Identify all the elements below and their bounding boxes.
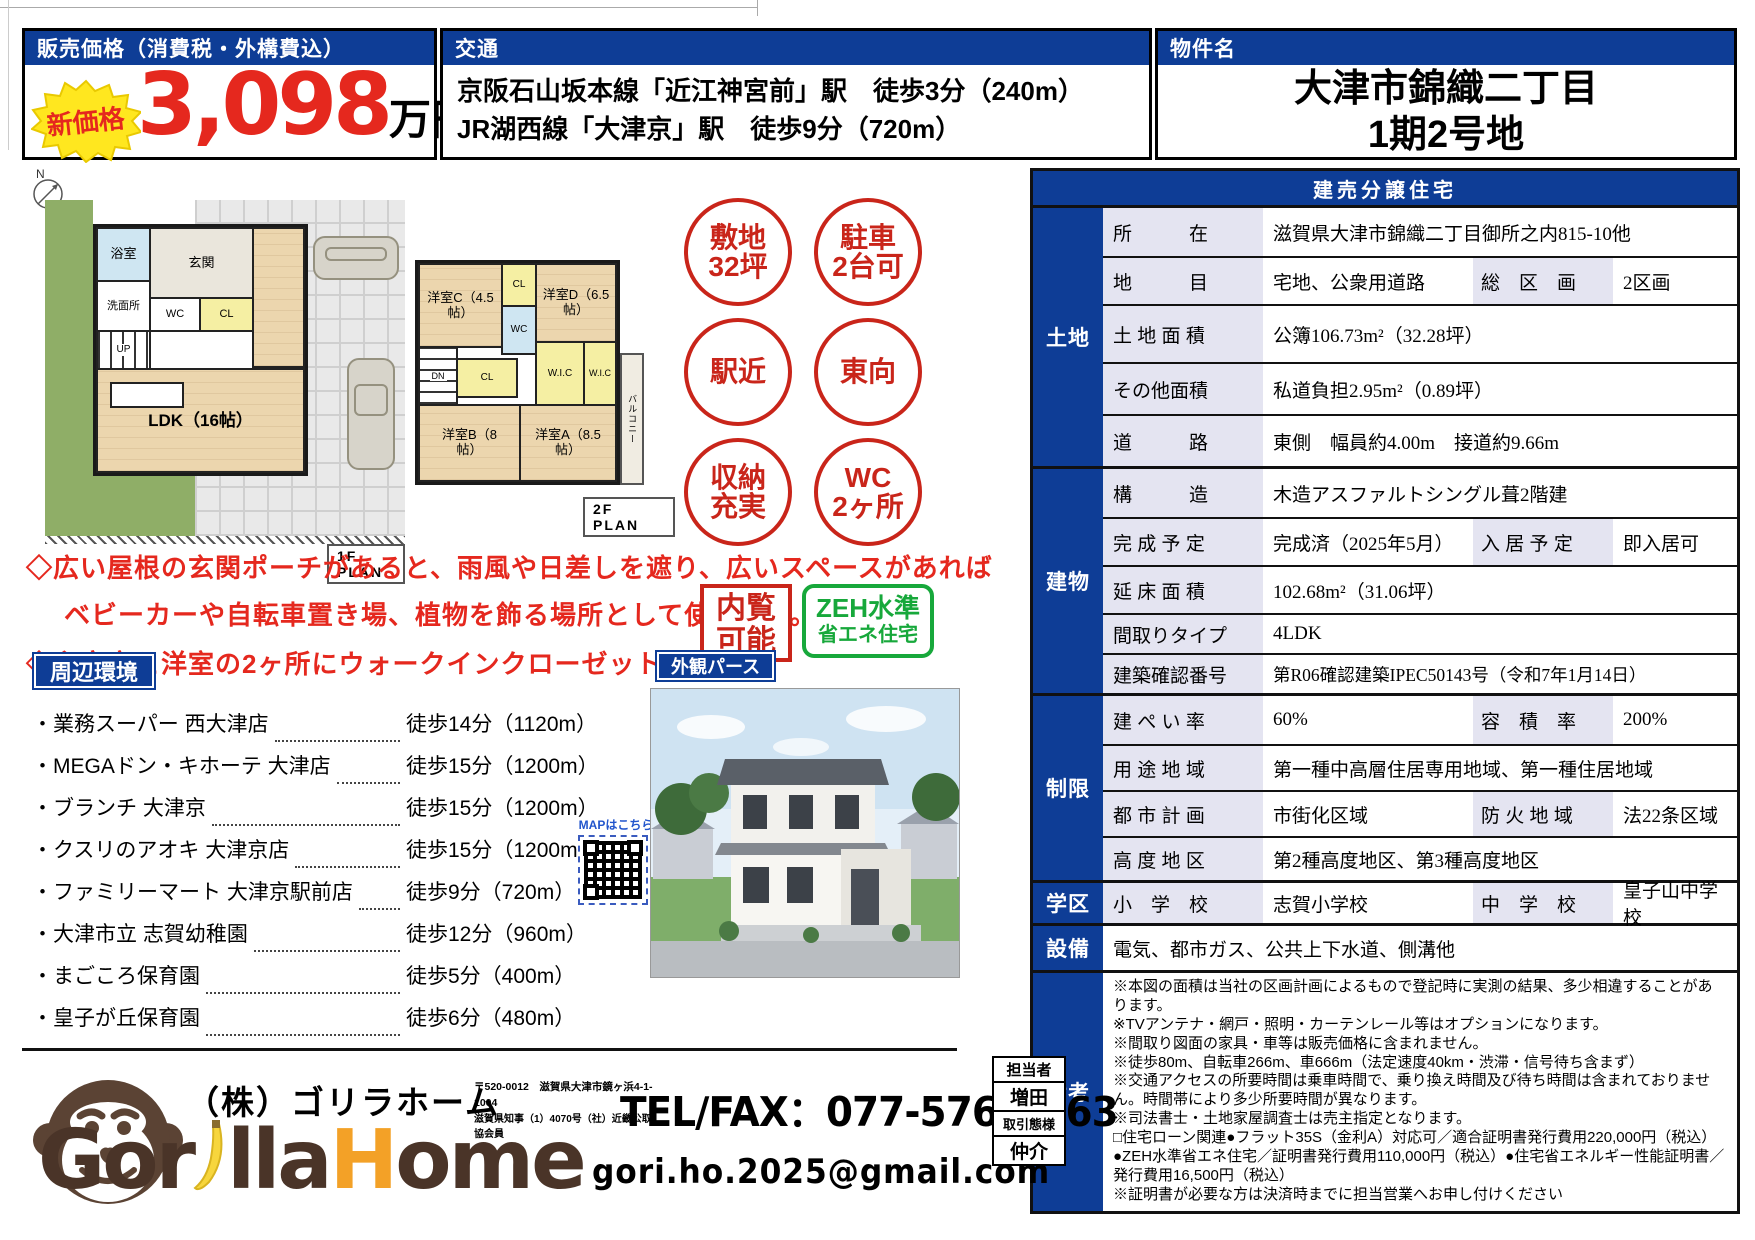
remark-line: ※本図の面積は当社の区画計画によるもので登記時に実測の結果、多少相違することがあ… [1113,978,1727,1016]
section-school: 学区 小 学 校 志賀小学校 中 学 校 皇子山中学校 [1033,883,1737,926]
spec-table: 建売分譲住宅 土地 所 在 滋賀県大津市錦織二丁目御所之内815-10他 地 目… [1030,168,1740,1214]
surrounding-item: ・ファミリーマート 大津京駅前店 徒歩9分（720m） [32,868,574,910]
feature-badge-line2: 2台可 [832,252,904,281]
land-area-label: 土 地 面 積 [1103,306,1263,362]
feature-badge-line1: 駐車 [840,223,896,252]
dotted-leader [254,920,400,952]
closet-2f-mid-label: CL [481,372,494,384]
qr-marker [583,840,599,856]
crop-mark-left [8,0,9,150]
remark-line: □住宅ローン関連●フラット35S（金利A）対応可／適合証明書発行費用220,00… [1113,1129,1727,1186]
map-qr-block: MAPはこちら [578,816,654,905]
feature-badge-line2: 32坪 [708,252,767,281]
feature-badge: 敷地 32坪 [684,198,792,306]
remark-line: ※間取り図面の家具・車等は販売価格に含まれません。 [1113,1035,1727,1054]
transit-line1: 京阪石山坂本線「近江神宮前」駅 徒歩3分（240m） [457,73,1135,111]
room-bath-label: 浴室 [110,247,136,262]
room-washroom-label: 洗面所 [107,300,140,313]
logo-lla: lla [227,1113,330,1208]
stairs-up: UP [96,330,151,370]
car-icon-top [313,236,399,280]
row-land-area: 土 地 面 積 公簿106.73m²（32.28坪） [1103,304,1737,362]
zeh-stamp: ZEH水準 省エネ住宅 [802,584,934,658]
price-box: 販売価格（消費税・外構費込） 新価格 3,098万円 [22,28,437,160]
surrounding-time: 徒歩12分（960m） [406,918,574,952]
row-completion: 完 成 予 定 完成済（2025年5月） 入 居 予 定 即入居可 [1103,517,1737,565]
exterior-render [650,688,960,978]
juniorhigh-label: 中 学 校 [1473,883,1613,923]
qr-marker [627,840,643,856]
volume-value: 200% [1613,709,1737,731]
closet-1f-label: CL [219,308,233,321]
row-cityplan: 都 市 計 画 市街化区域 防 火 地 域 法22条区域 [1103,790,1737,836]
logo-ome: ome [395,1113,583,1208]
room-d: 洋室D（6.5帖） [535,263,617,343]
room-1f-east [252,227,305,368]
row-landuse: 地 目 宅地、公衆用道路 総 区 画 2区画 [1103,256,1737,304]
section-land: 土地 所 在 滋賀県大津市錦織二丁目御所之内815-10他 地 目 宅地、公衆用… [1033,208,1737,469]
room-wc-2f-label: WC [511,324,528,336]
layout-label: 間取りタイプ [1103,615,1263,653]
dotted-leader [206,962,400,994]
stairs-up-label: UP [115,344,133,356]
permit-label: 建築確認番号 [1103,655,1263,693]
section-building-label: 建物 [1033,469,1103,693]
room-a-label: 洋室A（8.5帖） [533,428,603,458]
stairs-dn: DN [418,346,458,406]
section-restriction: 制限 建 ぺ い 率 60% 容 積 率 200% 用 途 地 域 第一種中高層… [1033,696,1737,883]
deal-label: 取引態様 [1003,1114,1055,1133]
surrounding-time: 徒歩5分（400m） [406,960,574,994]
room-washroom: 洗面所 [96,280,151,332]
feature-badge-line1: WC [845,463,892,492]
feature-badge: 駅近 [684,318,792,426]
feature-badge: 収納 充実 [684,438,792,546]
room-wc-2f: WC [501,305,537,355]
room-a: 洋室A（8.5帖） [519,404,617,482]
property-name-title: 物件名 [1170,33,1236,63]
room-entry: 玄関 [149,227,254,299]
other-area-label: その他面積 [1103,364,1263,414]
feature-badge-line1: 駅近 [710,357,766,386]
land-area-value: 公簿106.73m²（32.28坪） [1263,321,1737,348]
remark-line: ※TVアンテナ・網戸・照明・カーテンレール等はオプションになります。 [1113,1016,1727,1035]
house-1f: 浴室 洗面所 玄関 UP WC CL LDK（16帖） [93,224,308,476]
landuse-value: 宅地、公衆用道路 [1263,268,1473,295]
property-name-title-bar: 物件名 [1158,31,1734,65]
other-area-value: 私道負担2.95m²（0.89坪） [1263,376,1737,403]
surrounding-name: ・大津市立 志賀幼稚園 [32,918,248,952]
section-restriction-label: 制限 [1033,696,1103,880]
row-structure: 構 造 木造アスファルトシングル葺2階建 [1103,469,1737,517]
room-ldk-label: LDK（16帖） [148,411,253,431]
row-permit: 建築確認番号 第R06確認建築IPEC50143号（令和7年1月14日） [1103,653,1737,693]
transit-box: 交通 京阪石山坂本線「近江神宮前」駅 徒歩3分（240m） JR湖西線「大津京」… [440,28,1152,160]
closet-2f-top: CL [501,263,537,307]
room-bath: 浴室 [96,227,151,282]
crop-mark-top [0,7,758,8]
new-price-starburst: 新価格 [31,79,141,163]
agent-label-cell: 担当者 [992,1056,1066,1083]
price-value-wrap: 3,098万円 [137,65,473,147]
surrounding-item: ・ブランチ 大津京 徒歩15分（1200m） [32,784,574,826]
crop-mark-tick [757,0,758,16]
row-other-area: その他面積 私道負担2.95m²（0.89坪） [1103,362,1737,414]
agent-name-cell: 増田 [992,1081,1066,1112]
room-entry-label: 玄関 [188,256,214,271]
agent-box: 担当者 増田 取引態様 仲介 [992,1058,1066,1166]
juniorhigh-value: 皇子山中学校 [1613,876,1737,930]
surrounding-item: ・皇子が丘保育園 徒歩6分（480m） [32,994,574,1036]
remark-line: ※証明書が必要な方は決済時までに担当営業へお申し付けください [1113,1186,1727,1205]
height-district-label: 高 度 地 区 [1103,838,1263,880]
exterior-title: 外観パース [655,650,776,682]
fire-label: 防 火 地 域 [1473,792,1613,836]
kukaku-label: 総 区 画 [1473,258,1613,304]
balcony: バルコニー [620,353,644,485]
price-body: 新価格 3,098万円 [25,65,434,157]
surrounding-item: ・MEGAドン・キホーテ 大津店 徒歩15分（1200m） [32,742,574,784]
floor-area-value: 102.68m²（31.06坪） [1263,577,1737,604]
layout-value: 4LDK [1263,623,1737,645]
closet-1f: CL [199,297,254,332]
wic-1: W.I.C [535,341,585,406]
surrounding-name: ・業務スーパー 西大津店 [32,708,269,742]
email: gori.ho.2025@gmail.com [592,1152,1050,1192]
row-layout: 間取りタイプ 4LDK [1103,613,1737,653]
viewing-stamp-line1: 内覧 [704,592,788,625]
wic-2-label: W.I.C [589,368,611,378]
logo-wordmark: GorllaHome [38,1118,584,1202]
remark-line: ※徒歩80m、自転車266m、車666m（法定速度40km・渋滞・信号待ち含まず… [1113,1054,1727,1073]
road-label: 道 路 [1103,416,1263,466]
surroundings-list: ・業務スーパー 西大津店 徒歩14分（1120m） ・MEGAドン・キホーテ 大… [32,700,574,1036]
volume-label: 容 積 率 [1473,696,1613,744]
room-ldk: LDK（16帖） [96,368,305,473]
highlight-line1: ◇広い屋根の玄関ポーチがあると、雨風や日差しを遮り、広いスペースがあれば [26,548,956,585]
feature-badges: 敷地 32坪 駐車 2台可 駅近 東向 収納 充実 [684,198,930,546]
zeh-stamp-line1: ZEH水準 [806,594,930,623]
remarks-text: ※本図の面積は当社の区画計画によるもので登記時に実測の結果、多少相違することがあ… [1103,973,1737,1211]
feature-badge-line1: 東向 [840,357,896,386]
height-district-value: 第2種高度地区、第3種高度地区 [1263,846,1737,873]
fence-hatch-1f [45,536,405,544]
completion-value: 完成済（2025年5月） [1263,529,1473,556]
surrounding-item: ・大津市立 志賀幼稚園 徒歩12分（960m） [32,910,574,952]
feature-badge-line2: 2ヶ所 [832,492,904,521]
movein-label: 入 居 予 定 [1473,519,1613,565]
exterior-title-text: 外観パース [671,653,760,679]
surrounding-name: ・クスリのアオキ 大津京店 [32,834,289,868]
property-name-line1: 大津市錦織二丁目 [1158,67,1734,113]
surrounding-time: 徒歩15分（1200m） [406,750,574,784]
elementary-label: 小 学 校 [1103,883,1263,923]
structure-label: 構 造 [1103,469,1263,517]
balcony-label: バルコニー [627,394,637,444]
surroundings-title-text: 周辺環境 [50,655,138,687]
location-value: 滋賀県大津市錦織二丁目御所之内815-10他 [1263,219,1737,246]
surroundings-title: 周辺環境 [32,652,156,690]
equipment-value: 電気、都市ガス、公共上下水道、側溝他 [1103,935,1737,962]
surrounding-time: 徒歩9分（720m） [406,876,574,910]
property-name-box: 物件名 大津市錦織二丁目 1期2号地 [1155,28,1737,160]
plan-label-2f: 2F PLAN [583,497,675,537]
row-location: 所 在 滋賀県大津市錦織二丁目御所之内815-10他 [1103,208,1737,256]
surrounding-time: 徒歩15分（1200m） [406,834,574,868]
wic-1-label: W.I.C [548,368,572,380]
section-remarks: 備考 ※本図の面積は当社の区画計画によるもので登記時に実測の結果、多少相違するこ… [1033,973,1737,1211]
agent-label: 担当者 [1006,1059,1051,1080]
road-value: 東側 幅員約4.00m 接道約9.66m [1263,428,1737,455]
remark-line: ※交通アクセスの所要時間は乗車時間で、乗り換え時間及び待ち時間は含まれておりませ… [1113,1072,1727,1110]
surrounding-name: ・MEGAドン・キホーテ 大津店 [32,750,331,784]
feature-badge: WC 2ヶ所 [814,438,922,546]
dotted-leader [295,836,400,868]
kukaku-value: 2区画 [1613,268,1737,295]
dotted-leader [212,794,400,826]
wic-2: W.I.C [583,341,617,406]
deal-label-cell: 取引態様 [992,1110,1066,1137]
transit-title-bar: 交通 [443,31,1149,65]
deal-value: 仲介 [1010,1137,1048,1164]
floorplan-2f: 洋室C（4.5帖） CL WC 洋室D（6.5帖） DN CL W.I.C W.… [415,235,675,565]
room-c: 洋室C（4.5帖） [418,263,503,348]
coverage-value: 60% [1263,709,1473,731]
spec-title-text: 建売分譲住宅 [1313,174,1457,203]
closet-2f-mid: CL [456,358,518,398]
completion-label: 完 成 予 定 [1103,519,1263,565]
row-school: 小 学 校 志賀小学校 中 学 校 皇子山中学校 [1103,883,1737,923]
car-icon-side [347,358,395,470]
spec-title: 建売分譲住宅 [1033,171,1737,208]
map-label: MAPはこちら [578,816,654,833]
section-building: 建物 構 造 木造アスファルトシングル葺2階建 完 成 予 定 完成済（2025… [1033,469,1737,696]
feature-badge-line1: 敷地 [710,223,766,252]
room-c-label: 洋室C（4.5帖） [426,291,496,321]
logo-gor: Gor [38,1113,193,1208]
room-b-label: 洋室B（8帖） [435,428,505,458]
plan-label-2f-text: 2F PLAN [593,501,639,533]
dotted-leader [206,1004,400,1036]
room-wc-1f: WC [149,297,201,332]
room-wc-1f-label: WC [166,308,184,321]
surrounding-name: ・ファミリーマート 大津京駅前店 [32,876,353,910]
zoning-label: 用 途 地 域 [1103,746,1263,790]
row-zoning: 用 途 地 域 第一種中高層住居専用地域、第一種住居地域 [1103,744,1737,790]
section-land-label: 土地 [1033,208,1103,466]
deal-value-cell: 仲介 [992,1135,1066,1166]
compass-n-label: N [36,167,45,181]
row-road: 道 路 東側 幅員約4.00m 接道約9.66m [1103,414,1737,466]
surrounding-time: 徒歩15分（1200m） [406,792,574,826]
room-d-label: 洋室D（6.5帖） [541,288,611,318]
property-name-line2: 1期2号地 [1158,113,1734,159]
location-label: 所 在 [1103,208,1263,256]
surrounding-name: ・ブランチ 大津京 [32,792,206,826]
stairs-dn-label: DN [430,371,447,381]
fire-value: 法22条区域 [1613,801,1737,828]
zeh-stamp-line2: 省エネ住宅 [806,623,930,647]
qr-marker [583,884,599,900]
surrounding-name: ・皇子が丘保育園 [32,1002,200,1036]
remark-line: ※司法書士・土地家屋調査士は売主指定となります。 [1113,1110,1727,1129]
feature-badge: 東向 [814,318,922,426]
dotted-leader [275,710,400,742]
room-b: 洋室B（8帖） [418,404,521,482]
agent-name: 増田 [1010,1083,1048,1110]
logo-h: H [330,1113,396,1208]
row-equipment: 電気、都市ガス、公共上下水道、側溝他 [1103,926,1737,970]
permit-value: 第R06確認建築IPEC50143号（令和7年1月14日） [1263,662,1737,687]
dotted-leader [359,878,400,910]
structure-value: 木造アスファルトシングル葺2階建 [1263,480,1737,507]
house-2f: 洋室C（4.5帖） CL WC 洋室D（6.5帖） DN CL W.I.C W.… [415,260,620,485]
surrounding-item: ・業務スーパー 西大津店 徒歩14分（1120m） [32,700,574,742]
movein-value: 即入居可 [1613,529,1737,556]
zoning-value: 第一種中高層住居専用地域、第一種住居地域 [1263,755,1737,782]
closet-2f-top-label: CL [513,279,526,291]
floorplan-1f: 浴室 洗面所 玄関 UP WC CL LDK（16帖） 1F PLAN [45,200,405,558]
row-floor-area: 延 床 面 積 102.68m²（31.06坪） [1103,565,1737,613]
kitchen-counter [110,382,184,408]
surrounding-item: ・まごころ保育園 徒歩5分（400m） [32,952,574,994]
coverage-label: 建 ぺ い 率 [1103,696,1263,744]
transit-line2: JR湖西線「大津京」駅 徒歩9分（720m） [457,111,1135,149]
transit-title: 交通 [455,33,499,63]
surrounding-time: 徒歩14分（1120m） [406,708,574,742]
dotted-leader [337,752,400,784]
flyer-page: 販売価格（消費税・外構費込） 新価格 3,098万円 交通 京阪石山坂本線「近江… [0,0,1755,1240]
price-value: 3,098 [137,55,389,155]
row-height-district: 高 度 地 区 第2種高度地区、第3種高度地区 [1103,836,1737,880]
surrounding-time: 徒歩6分（480m） [406,1002,574,1036]
landuse-label: 地 目 [1103,258,1263,304]
cityplan-value: 市街化区域 [1263,801,1473,828]
elementary-value: 志賀小学校 [1263,890,1473,917]
feature-badge-line1: 収納 [710,463,766,492]
row-coverage: 建 ぺ い 率 60% 容 積 率 200% [1103,696,1737,744]
cityplan-label: 都 市 計 画 [1103,792,1263,836]
feature-badge: 駐車 2台可 [814,198,922,306]
feature-badge-line2: 充実 [710,492,766,521]
footer-divider [22,1048,957,1051]
section-school-label: 学区 [1033,883,1103,923]
section-equipment: 設備 電気、都市ガス、公共上下水道、側溝他 [1033,926,1737,973]
surrounding-item: ・クスリのアオキ 大津京店 徒歩15分（1200m） [32,826,574,868]
banana-icon [193,1118,227,1196]
section-equipment-label: 設備 [1033,926,1103,970]
surrounding-name: ・まごころ保育園 [32,960,200,994]
qr-code [578,835,648,905]
floor-area-label: 延 床 面 積 [1103,567,1263,613]
